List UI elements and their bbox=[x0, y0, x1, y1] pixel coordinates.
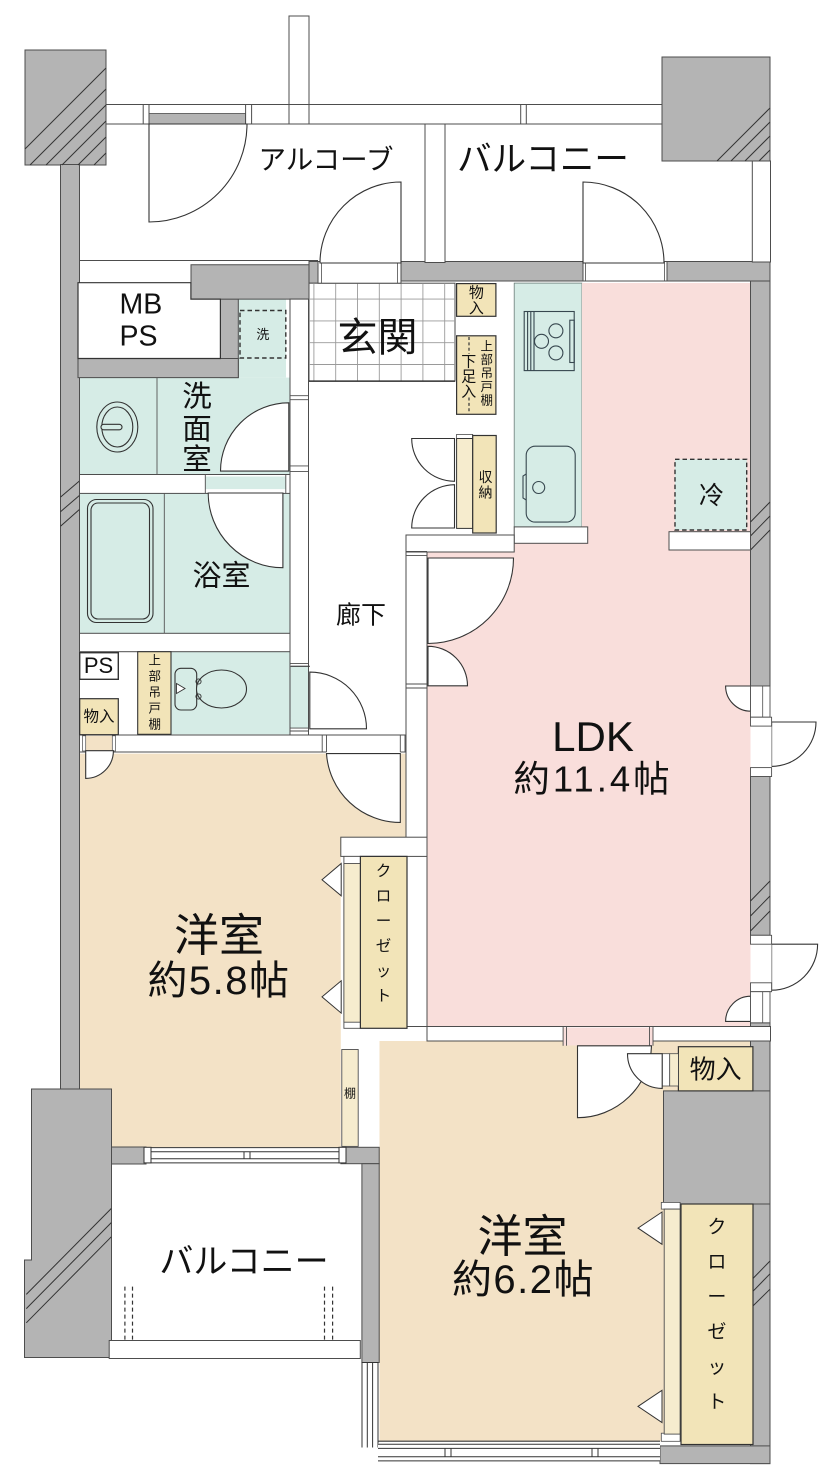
svg-text:ク: ク bbox=[376, 862, 392, 880]
svg-text:入: 入 bbox=[469, 300, 484, 317]
svg-text:ト: ト bbox=[376, 988, 392, 1005]
svg-text:物: 物 bbox=[469, 285, 484, 302]
svg-text:棚: 棚 bbox=[149, 717, 162, 732]
svg-text:洋室: 洋室 bbox=[174, 910, 264, 961]
svg-text:洗: 洗 bbox=[182, 381, 212, 414]
svg-text:ロ: ロ bbox=[376, 888, 392, 905]
svg-text:吊: 吊 bbox=[149, 686, 162, 700]
svg-text:PS: PS bbox=[120, 321, 158, 353]
svg-text:冷: 冷 bbox=[699, 482, 724, 510]
svg-text:ー: ー bbox=[376, 913, 392, 930]
svg-text:約11.4帖: 約11.4帖 bbox=[513, 759, 672, 800]
svg-text:ト: ト bbox=[707, 1392, 726, 1413]
svg-text:ッ: ッ bbox=[707, 1357, 726, 1378]
svg-text:洗: 洗 bbox=[256, 327, 269, 342]
svg-text:MB: MB bbox=[120, 289, 163, 321]
svg-text:室: 室 bbox=[182, 444, 212, 477]
svg-text:面: 面 bbox=[182, 413, 212, 446]
svg-text:上: 上 bbox=[149, 654, 162, 668]
svg-text:浴室: 浴室 bbox=[192, 560, 250, 593]
svg-text:棚: 棚 bbox=[344, 1086, 356, 1101]
svg-text:ッ: ッ bbox=[376, 963, 392, 980]
svg-text:戸: 戸 bbox=[481, 380, 494, 394]
svg-text:廊下: 廊下 bbox=[336, 602, 386, 630]
svg-text:収: 収 bbox=[479, 469, 493, 485]
svg-text:約5.8帖: 約5.8帖 bbox=[147, 959, 290, 1003]
svg-text:玄関: 玄関 bbox=[338, 316, 418, 360]
svg-text:約6.2帖: 約6.2帖 bbox=[452, 1258, 595, 1302]
svg-text:吊: 吊 bbox=[481, 367, 494, 381]
svg-text:ク: ク bbox=[707, 1216, 726, 1238]
svg-text:上: 上 bbox=[481, 340, 494, 354]
svg-text:バルコニー: バルコニー bbox=[159, 1243, 328, 1281]
svg-text:納: 納 bbox=[479, 485, 493, 501]
svg-text:バルコニー: バルコニー bbox=[457, 141, 629, 179]
svg-text:ー: ー bbox=[707, 1287, 726, 1308]
svg-text:部: 部 bbox=[481, 352, 494, 367]
svg-text:物入: 物入 bbox=[83, 708, 114, 726]
svg-text:ゼ: ゼ bbox=[376, 937, 392, 955]
svg-text:物入: 物入 bbox=[690, 1055, 742, 1085]
svg-text:ゼ: ゼ bbox=[707, 1321, 726, 1343]
svg-text:入: 入 bbox=[461, 384, 476, 401]
svg-text:戸: 戸 bbox=[149, 702, 162, 716]
svg-text:PS: PS bbox=[84, 653, 113, 678]
svg-text:LDK: LDK bbox=[552, 713, 634, 760]
svg-text:ロ: ロ bbox=[707, 1252, 726, 1273]
svg-text:アルコーブ: アルコーブ bbox=[258, 144, 393, 175]
svg-text:棚: 棚 bbox=[481, 393, 494, 408]
svg-text:洋室: 洋室 bbox=[477, 1211, 567, 1262]
svg-text:部: 部 bbox=[149, 669, 162, 684]
